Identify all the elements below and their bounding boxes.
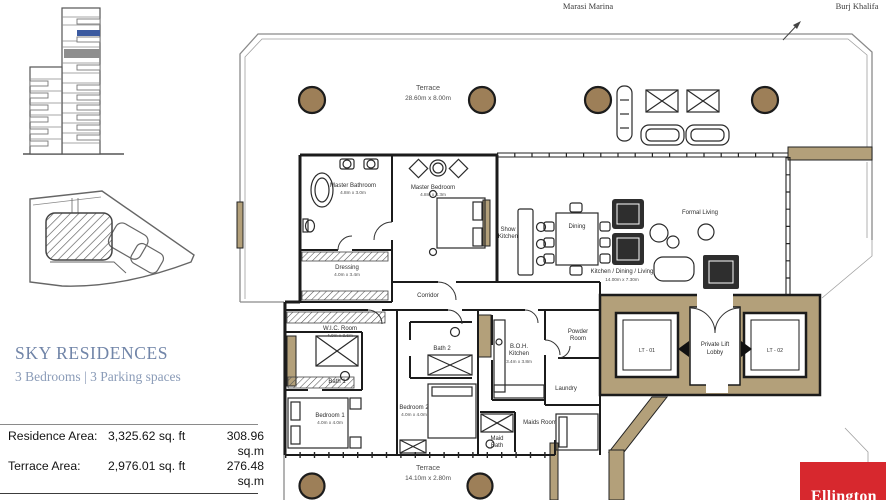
- master-bathroom-dims: 4.8m x 3.0m: [340, 190, 366, 195]
- show-kitchen-label-1: Show: [500, 227, 516, 233]
- bedroom1-label: Bedroom 1: [315, 413, 345, 419]
- terrace-bottom-label: Terrace: [416, 463, 440, 472]
- floor-plan: Terrace 28.60m x 8.00m Terrace 14.10m x …: [228, 18, 890, 500]
- residence-title: SKY RESIDENCES: [15, 343, 168, 364]
- terrace-top-dims: 28.60m x 8.00m: [405, 95, 451, 102]
- lift-shaft-1: [616, 313, 678, 377]
- view-label-burj-khalifa: Burj Khalifa: [826, 1, 888, 11]
- maid-bath-label-2: Bath: [491, 443, 503, 449]
- highlighted-floor-marker: [77, 30, 100, 36]
- door-swings: [338, 222, 570, 358]
- developer-logo: Ellington: [800, 462, 886, 500]
- developer-logo-text: Ellington: [811, 488, 877, 500]
- maid-bath-label-1: Maid: [490, 436, 503, 442]
- wic-dims: 4.0m x 3.6m: [327, 333, 353, 338]
- area-label: Terrace Area:: [8, 459, 108, 489]
- building-elevation-diagram: [20, 3, 130, 161]
- dressing-dims: 4.0m x 3.4m: [334, 272, 360, 277]
- lift-lobby-label-1: Private Lift: [701, 342, 730, 348]
- powder-label-2: Room: [570, 336, 586, 342]
- kitchen-dining-living-dims: 14.00m x 7.30m: [605, 277, 639, 282]
- bedroom1-dims: 4.0m x 4.0m: [317, 420, 343, 425]
- view-label-marasi-marina: Marasi Marina: [543, 1, 633, 11]
- boh-kitchen-label-2: Kitchen: [509, 351, 529, 357]
- area-table: Residence Area: 3,325.62 sq. ft 308.96 s…: [0, 424, 258, 500]
- floorplan-sheet: Marasi Marina Burj Khalifa: [0, 0, 890, 500]
- mechanical-floor-band: [64, 49, 100, 58]
- terrace-furniture: [617, 86, 729, 145]
- corridor-label: Corridor: [417, 293, 439, 299]
- lift-lobby-label-2: Lobby: [707, 350, 723, 356]
- area-label: Residence Area:: [8, 429, 108, 459]
- adjacent-plot-outlines: [104, 220, 169, 275]
- boh-kitchen-dims: 3.4m x 3.8m: [506, 359, 532, 364]
- laundry-label: Laundry: [555, 386, 577, 392]
- north-arrow-icon: [783, 21, 801, 40]
- area-sqft: 3,325.62 sq. ft: [108, 429, 210, 459]
- lift1-label: LT - 01: [639, 348, 655, 354]
- area-sqft: 2,976.01 sq. ft: [108, 459, 210, 489]
- formal-living-label: Formal Living: [682, 210, 718, 216]
- table-row: Terrace Area: 2,976.01 sq. ft 276.48 sq.…: [0, 459, 258, 489]
- master-bedroom-dims: 4.8m x 4.3m: [420, 192, 446, 197]
- boh-kitchen-label-1: B.O.H.: [510, 344, 528, 350]
- dressing-label: Dressing: [335, 265, 359, 271]
- show-kitchen-label-2: Kitchen: [498, 234, 518, 240]
- lift-shaft-2: [744, 313, 806, 377]
- bath1-label: Bath 1: [328, 379, 346, 385]
- powder-label-1: Powder: [568, 329, 588, 335]
- formal-living-sofa: [612, 199, 739, 289]
- maids-room-label: Maids Room: [523, 420, 557, 426]
- bedroom2-label: Bedroom 2: [399, 405, 429, 411]
- master-bedroom-label: Master Bedroom: [411, 185, 455, 191]
- building-footprint-hatched: [46, 213, 112, 260]
- bedroom2-dims: 4.0m x 4.0m: [401, 412, 427, 417]
- site-plan-diagram: [22, 185, 204, 297]
- table-row-total: Total Area: 6,301.62 sq. ft 585.44 sq.m: [0, 494, 258, 500]
- residence-subtitle: 3 Bedrooms | 3 Parking spaces: [15, 369, 181, 385]
- terrace-bottom-dims: 14.10m x 2.80m: [405, 475, 451, 482]
- wic-label: W.I.C. Room: [323, 326, 357, 332]
- master-bathroom-label: Master Bathroom: [330, 183, 376, 189]
- dining-label: Dining: [568, 224, 585, 230]
- terrace-top-label: Terrace: [416, 83, 440, 92]
- table-row: Residence Area: 3,325.62 sq. ft 308.96 s…: [0, 429, 258, 459]
- kitchen-dining-living-label: Kitchen / Dining / Living: [591, 269, 654, 275]
- lift2-label: LT - 02: [767, 348, 783, 354]
- bath2-label: Bath 2: [433, 346, 451, 352]
